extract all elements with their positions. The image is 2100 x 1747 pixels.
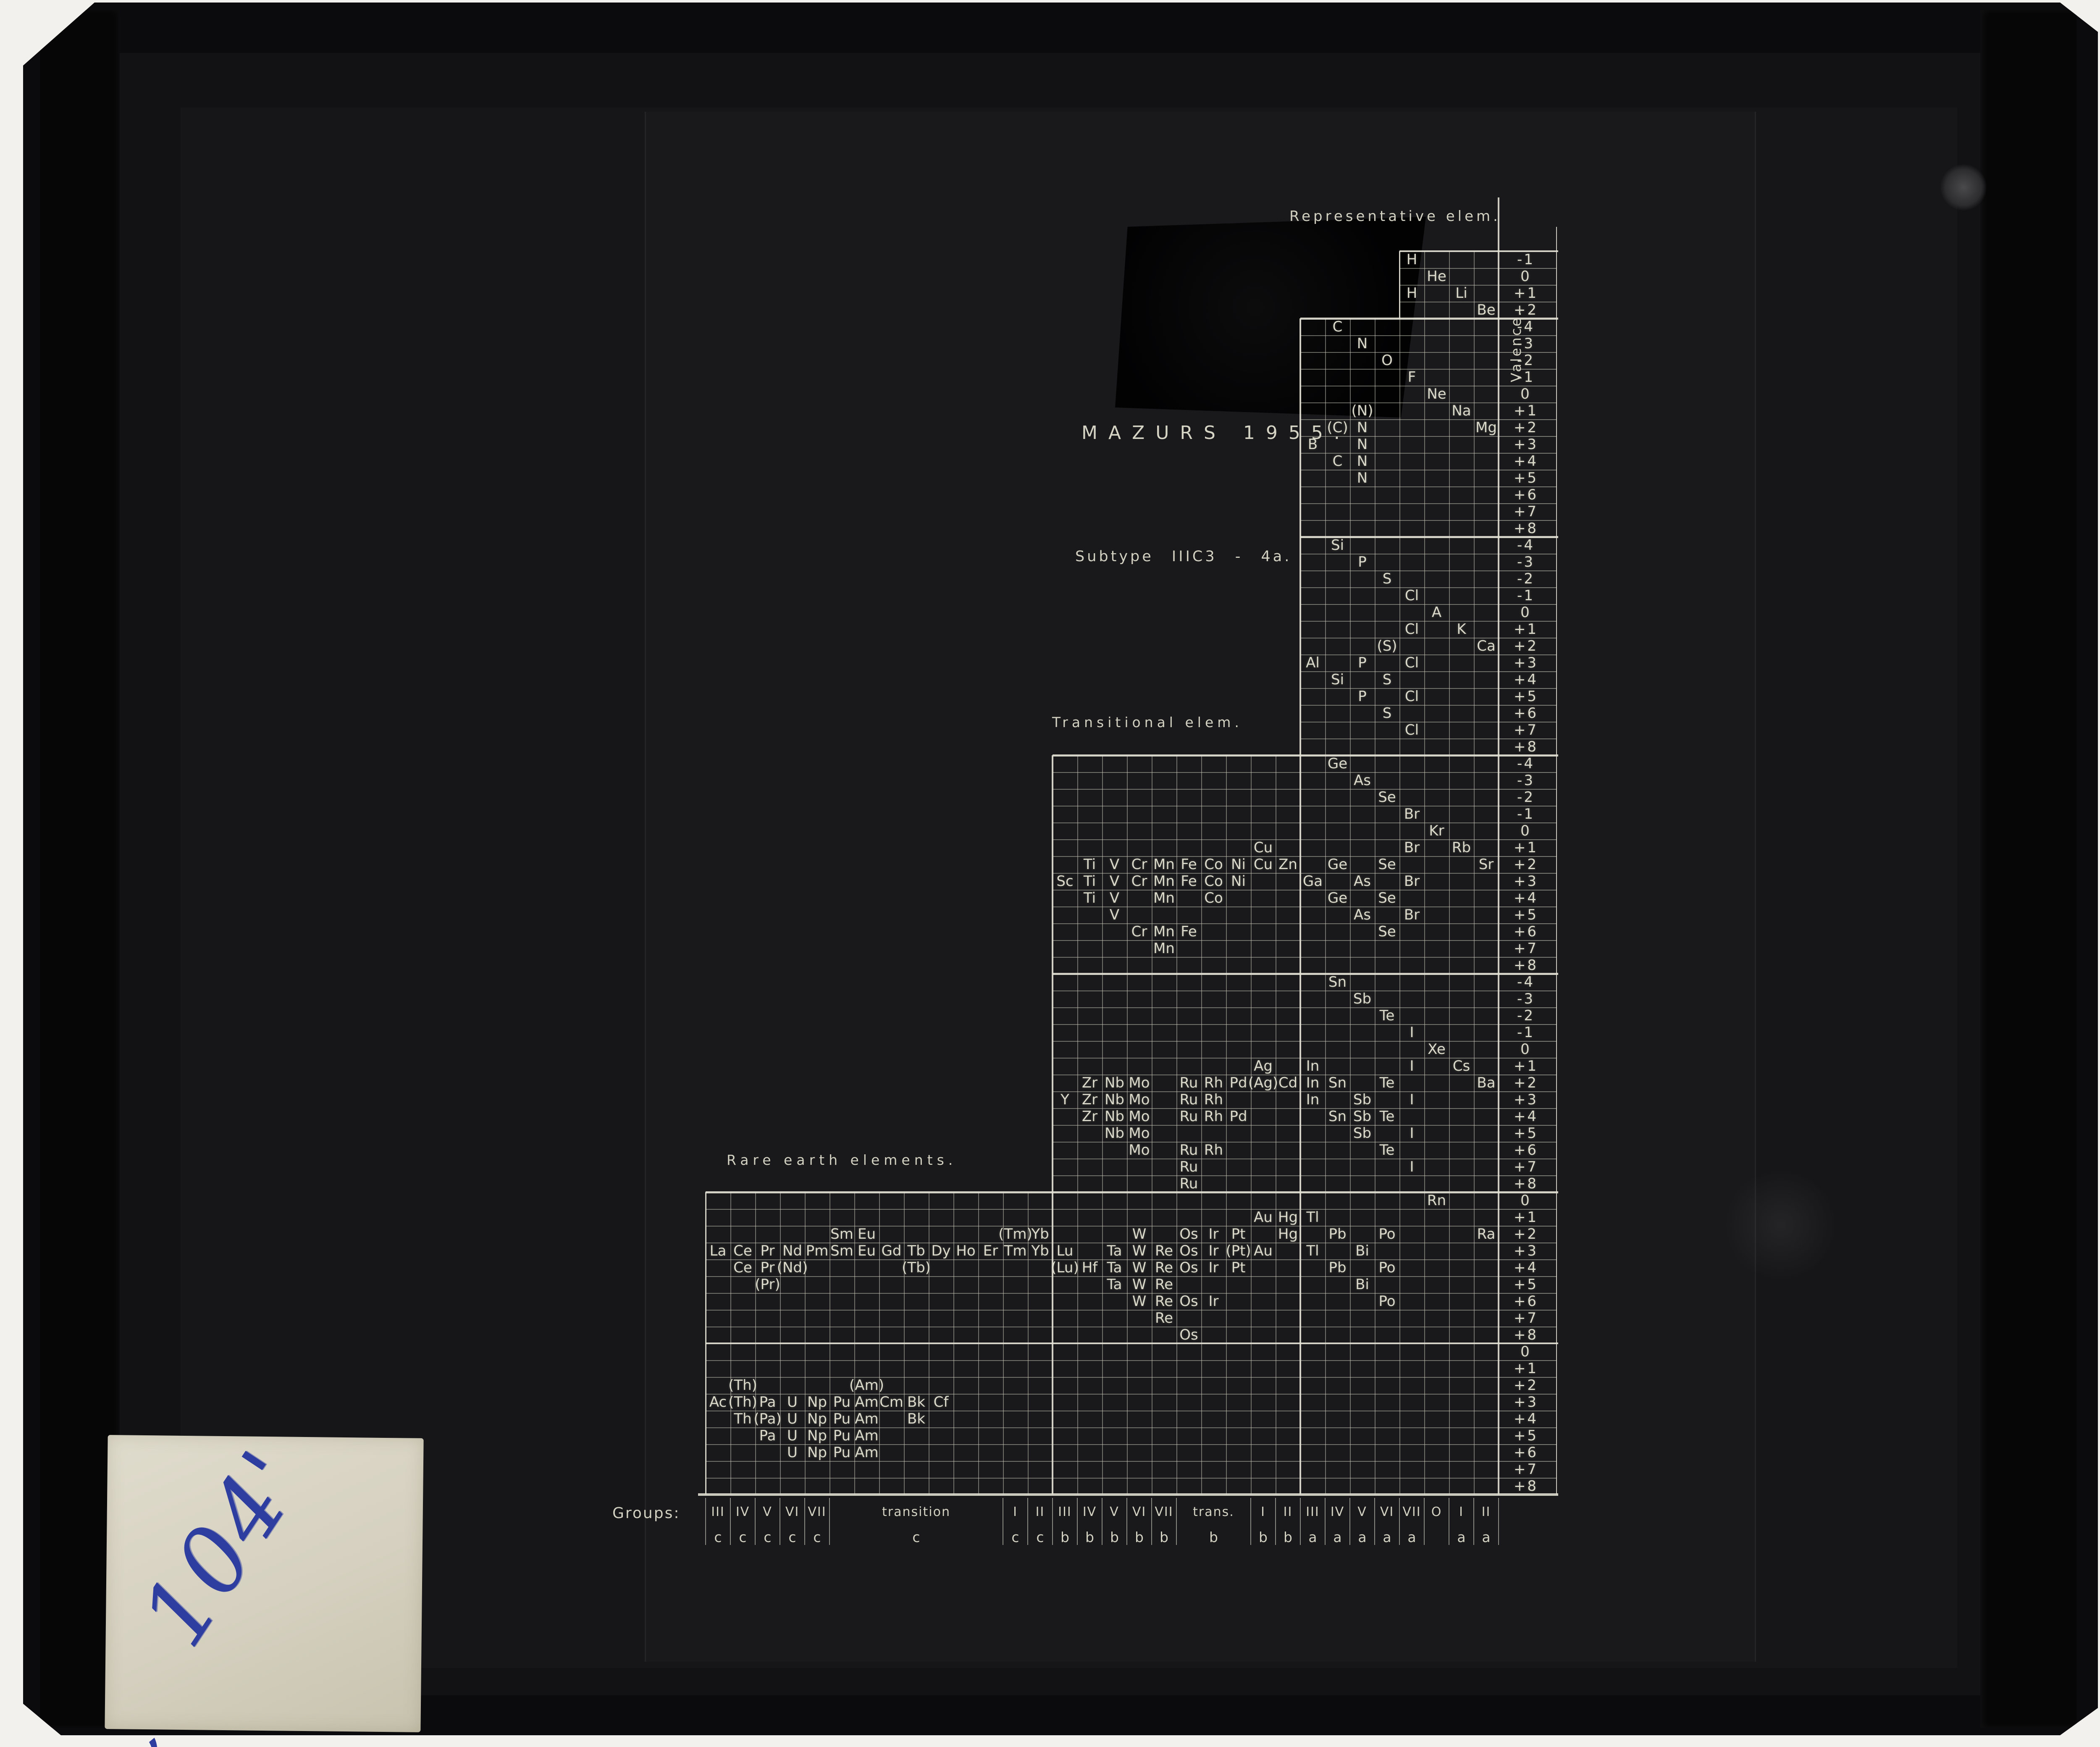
valence-value: +1: [1502, 1058, 1550, 1074]
element-symbol: Np: [805, 1411, 829, 1427]
element-symbol: (Th): [730, 1377, 755, 1394]
element-symbol: K: [1449, 621, 1474, 638]
element-symbol: In: [1300, 1058, 1325, 1074]
valence-value: +1: [1502, 621, 1550, 638]
element-symbol: Mn: [1152, 940, 1176, 957]
element-symbol: Np: [805, 1394, 829, 1411]
element-symbol: U: [780, 1427, 805, 1444]
valence-value: +8: [1502, 1327, 1550, 1343]
group-divider: [730, 1498, 731, 1545]
element-symbol: Kr: [1424, 822, 1449, 839]
element-symbol: Sn: [1325, 1108, 1350, 1125]
group-letter-label: c: [730, 1528, 755, 1546]
rule-line-horizontal: [1053, 973, 1558, 975]
group-roman-label: II: [1474, 1503, 1499, 1521]
element-symbol: (N): [1350, 402, 1375, 419]
element-symbol: Re: [1152, 1276, 1176, 1293]
element-symbol: U: [780, 1411, 805, 1427]
group-roman-label: IV: [1325, 1503, 1350, 1521]
rule-line-horizontal: [706, 1342, 1558, 1344]
rule-line-horizontal: [1053, 754, 1558, 757]
element-symbol: In: [1300, 1074, 1325, 1091]
element-symbol: Ne: [1424, 386, 1449, 402]
element-symbol: Mo: [1127, 1142, 1152, 1159]
valence-value: 0: [1502, 386, 1550, 402]
valence-value: +7: [1502, 1159, 1550, 1175]
element-symbol: Sc: [1053, 873, 1077, 890]
element-symbol: As: [1350, 906, 1375, 923]
valence-value: -4: [1502, 755, 1550, 772]
valence-value: -3: [1502, 990, 1550, 1007]
element-symbol: (C): [1325, 419, 1350, 436]
element-symbol: Ce: [730, 1243, 755, 1259]
group-letter-label: b: [1077, 1528, 1102, 1546]
element-symbol: N: [1350, 453, 1375, 470]
element-symbol: Fe: [1176, 873, 1201, 890]
valence-value: +3: [1502, 654, 1550, 671]
valence-value: -4: [1502, 318, 1550, 335]
group-divider: [1176, 1498, 1177, 1545]
element-symbol: Mo: [1127, 1091, 1152, 1108]
element-symbol: Ga: [1300, 873, 1325, 890]
element-symbol: U: [780, 1394, 805, 1411]
element-symbol: Pu: [829, 1394, 854, 1411]
element-symbol: (Tm): [1003, 1226, 1028, 1243]
element-symbol: Se: [1375, 789, 1399, 806]
element-symbol: W: [1127, 1243, 1152, 1259]
element-symbol: Te: [1375, 1007, 1399, 1024]
element-symbol: U: [780, 1444, 805, 1461]
group-letter-label: c: [1028, 1528, 1053, 1546]
valence-value: +7: [1502, 503, 1550, 520]
element-symbol: V: [1102, 856, 1127, 873]
group-divider: [804, 1498, 805, 1545]
element-symbol: Ag: [1251, 1058, 1276, 1074]
valence-value: 0: [1502, 604, 1550, 621]
element-symbol: Mn: [1152, 856, 1176, 873]
group-divider: [1250, 1498, 1251, 1545]
element-symbol: Cu: [1251, 839, 1276, 856]
valence-value: +5: [1502, 1125, 1550, 1142]
group-divider: [1027, 1498, 1028, 1545]
element-symbol: Yb: [1028, 1226, 1053, 1243]
element-symbol: P: [1350, 688, 1375, 705]
element-symbol: Ni: [1226, 856, 1251, 873]
element-symbol: Zn: [1276, 856, 1300, 873]
group-divider: [1126, 1498, 1127, 1545]
valence-value: +7: [1502, 722, 1550, 738]
valence-value: -3: [1502, 772, 1550, 789]
element-symbol: Hf: [1077, 1259, 1102, 1276]
element-symbol: Sb: [1350, 1125, 1375, 1142]
groups-label: Groups:: [612, 1505, 680, 1522]
group-letter-label: b: [1127, 1528, 1152, 1546]
element-symbol: Re: [1152, 1310, 1176, 1327]
element-symbol: H: [1399, 251, 1424, 268]
valence-value: +4: [1502, 890, 1550, 906]
group-divider: [1349, 1498, 1350, 1545]
element-symbol: N: [1350, 419, 1375, 436]
element-symbol: Pa: [755, 1427, 780, 1444]
element-symbol: He: [1424, 268, 1449, 285]
group-letter-label: a: [1350, 1528, 1375, 1546]
element-symbol: Cr: [1127, 873, 1152, 890]
element-symbol: Br: [1399, 873, 1424, 890]
valence-value: +2: [1502, 1377, 1550, 1394]
element-symbol: Co: [1201, 890, 1226, 906]
element-symbol: Am: [854, 1427, 879, 1444]
group-letter-label: a: [1300, 1528, 1325, 1546]
valence-value: +5: [1502, 470, 1550, 486]
valence-value: +8: [1502, 1175, 1550, 1192]
element-symbol: Nd: [780, 1243, 805, 1259]
element-symbol: V: [1102, 890, 1127, 906]
group-roman-label: VI: [780, 1503, 805, 1521]
valence-value: +2: [1502, 1226, 1550, 1243]
valence-value: +6: [1502, 486, 1550, 503]
element-symbol: Nb: [1102, 1074, 1127, 1091]
valence-value: -2: [1502, 352, 1550, 369]
valence-value: +2: [1502, 638, 1550, 654]
element-symbol: Li: [1449, 285, 1474, 302]
valence-value: +3: [1502, 1091, 1550, 1108]
element-symbol: Ru: [1176, 1091, 1201, 1108]
element-symbol: Cl: [1399, 654, 1424, 671]
valence-value: +8: [1502, 520, 1550, 537]
element-symbol: I: [1399, 1058, 1424, 1074]
group-roman-label: V: [1102, 1503, 1127, 1521]
group-roman-label: IV: [730, 1503, 755, 1521]
element-symbol: Au: [1251, 1209, 1276, 1226]
element-symbol: Ir: [1201, 1226, 1226, 1243]
element-symbol: Os: [1176, 1293, 1201, 1310]
element-symbol: Mo: [1127, 1108, 1152, 1125]
element-symbol: Ge: [1325, 755, 1350, 772]
element-symbol: Mn: [1152, 890, 1176, 906]
element-symbol: Sr: [1474, 856, 1499, 873]
element-symbol: Sn: [1325, 1074, 1350, 1091]
element-symbol: Ir: [1201, 1243, 1226, 1259]
group-divider: [780, 1498, 780, 1545]
group-letter-label: c: [805, 1528, 829, 1546]
element-symbol: Se: [1375, 923, 1399, 940]
element-symbol: (Lu): [1053, 1259, 1077, 1276]
valence-value: +4: [1502, 1411, 1550, 1427]
group-divider: [1003, 1498, 1003, 1545]
element-symbol: (Tb): [904, 1259, 929, 1276]
group-letter-label: c: [829, 1528, 1003, 1546]
valence-value: -3: [1502, 335, 1550, 352]
element-symbol: Ho: [953, 1243, 978, 1259]
element-symbol: Pt: [1226, 1226, 1251, 1243]
element-symbol: Np: [805, 1444, 829, 1461]
group-divider: [1424, 1498, 1425, 1545]
group-roman-label: I: [1449, 1503, 1474, 1521]
element-symbol: (Pt): [1226, 1243, 1251, 1259]
element-symbol: Rh: [1201, 1108, 1226, 1125]
element-symbol: As: [1350, 873, 1375, 890]
group-letter-label: a: [1449, 1528, 1474, 1546]
element-symbol: Am: [854, 1444, 879, 1461]
element-symbol: Ru: [1176, 1108, 1201, 1125]
valence-value: +1: [1502, 1209, 1550, 1226]
element-symbol: Ru: [1176, 1159, 1201, 1175]
valence-value: +3: [1502, 436, 1550, 453]
element-symbol: Ru: [1176, 1142, 1201, 1159]
element-symbol: N: [1350, 470, 1375, 486]
group-roman-label: V: [755, 1503, 780, 1521]
element-symbol: Yb: [1028, 1243, 1053, 1259]
element-symbol: I: [1399, 1125, 1424, 1142]
element-symbol: Tm: [1003, 1243, 1028, 1259]
element-symbol: Cl: [1399, 688, 1424, 705]
element-symbol: W: [1127, 1259, 1152, 1276]
element-symbol: Pb: [1325, 1259, 1350, 1276]
element-symbol: P: [1350, 554, 1375, 570]
element-symbol: Ba: [1474, 1074, 1499, 1091]
catalog-sticker: 104' ,: [105, 1435, 423, 1732]
element-symbol: I: [1399, 1159, 1424, 1175]
element-symbol: Hg: [1276, 1226, 1300, 1243]
group-letter-label: a: [1375, 1528, 1399, 1546]
element-symbol: Bi: [1350, 1243, 1375, 1259]
element-symbol: Mg: [1474, 419, 1499, 436]
element-symbol: Pt: [1226, 1259, 1251, 1276]
group-letter-label: b: [1176, 1528, 1251, 1546]
valence-value: +3: [1502, 873, 1550, 890]
element-symbol: Ni: [1226, 873, 1251, 890]
element-symbol: Cd: [1276, 1074, 1300, 1091]
element-symbol: Pu: [829, 1411, 854, 1427]
valence-value: -2: [1502, 570, 1550, 587]
group-divider: [1102, 1498, 1102, 1545]
element-symbol: Cr: [1127, 923, 1152, 940]
element-symbol: Ca: [1474, 638, 1499, 654]
element-symbol: C: [1325, 453, 1350, 470]
element-symbol: (Pr): [755, 1276, 780, 1293]
element-symbol: Dy: [929, 1243, 953, 1259]
valence-value: +5: [1502, 688, 1550, 705]
element-symbol: Fe: [1176, 923, 1201, 940]
group-roman-label: VI: [1375, 1503, 1399, 1521]
rule-line-vertical: [1399, 251, 1400, 318]
element-symbol: F: [1399, 369, 1424, 386]
element-symbol: Y: [1053, 1091, 1077, 1108]
group-roman-label: IV: [1077, 1503, 1102, 1521]
element-symbol: Sb: [1350, 990, 1375, 1007]
group-divider: [1052, 1498, 1053, 1545]
group-roman-label: II: [1028, 1503, 1053, 1521]
element-symbol: Ru: [1176, 1175, 1201, 1192]
element-symbol: Pa: [755, 1394, 780, 1411]
element-symbol: Bi: [1350, 1276, 1375, 1293]
element-symbol: Pr: [755, 1259, 780, 1276]
group-roman-label: I: [1003, 1503, 1028, 1521]
element-symbol: Eu: [854, 1226, 879, 1243]
element-symbol: Be: [1474, 302, 1499, 318]
element-symbol: S: [1375, 705, 1399, 722]
element-symbol: Po: [1375, 1226, 1399, 1243]
element-symbol: Se: [1375, 856, 1399, 873]
group-roman-label: O: [1424, 1503, 1449, 1521]
group-roman-label: I: [1251, 1503, 1276, 1521]
group-roman-label: VII: [805, 1503, 829, 1521]
element-symbol: P: [1350, 654, 1375, 671]
group-divider: [1300, 1498, 1301, 1545]
rule-line-horizontal: [1300, 318, 1558, 320]
valence-value: +7: [1502, 1461, 1550, 1478]
element-symbol: Sn: [1325, 974, 1350, 990]
valence-value: -1: [1502, 251, 1550, 268]
element-symbol: Zr: [1077, 1074, 1102, 1091]
element-symbol: Sm: [829, 1226, 854, 1243]
element-symbol: Re: [1152, 1293, 1176, 1310]
element-symbol: W: [1127, 1276, 1152, 1293]
valence-value: -2: [1502, 789, 1550, 806]
rule-line-horizontal: [706, 1191, 1558, 1193]
element-symbol: Ti: [1077, 856, 1102, 873]
element-symbol: Er: [978, 1243, 1003, 1259]
element-symbol: Ta: [1102, 1276, 1127, 1293]
element-symbol: Mo: [1127, 1125, 1152, 1142]
element-symbol: C: [1325, 318, 1350, 335]
element-symbol: Sb: [1350, 1108, 1375, 1125]
element-symbol: (Ag): [1251, 1074, 1276, 1091]
element-symbol: Au: [1251, 1243, 1276, 1259]
rare-earth-elements-label: Rare earth elements.: [727, 1152, 957, 1168]
valence-value: +2: [1502, 419, 1550, 436]
group-roman-label: III: [1300, 1503, 1325, 1521]
valence-value: +4: [1502, 1108, 1550, 1125]
element-symbol: Pm: [805, 1243, 829, 1259]
rule-line-vertical: [705, 1192, 706, 1495]
valence-value: +6: [1502, 1293, 1550, 1310]
element-symbol: Co: [1201, 873, 1226, 890]
catalog-number-handwriting: 104': [121, 1431, 325, 1665]
element-symbol: Os: [1176, 1259, 1201, 1276]
element-symbol: (S): [1375, 638, 1399, 654]
group-divider: [829, 1498, 830, 1545]
element-symbol: Ta: [1102, 1259, 1127, 1276]
element-symbol: W: [1127, 1293, 1152, 1310]
element-symbol: (Pa): [755, 1411, 780, 1427]
element-symbol: Si: [1325, 537, 1350, 554]
group-divider: [1077, 1498, 1078, 1545]
valence-value: 0: [1502, 822, 1550, 839]
valence-value: -1: [1502, 369, 1550, 386]
element-symbol: Tl: [1300, 1243, 1325, 1259]
element-symbol: I: [1399, 1091, 1424, 1108]
element-symbol: Am: [854, 1411, 879, 1427]
element-symbol: Pb: [1325, 1226, 1350, 1243]
element-symbol: Ti: [1077, 890, 1102, 906]
element-symbol: Bk: [904, 1394, 929, 1411]
valence-value: +7: [1502, 940, 1550, 957]
group-roman-label: trans.: [1176, 1503, 1251, 1521]
element-symbol: S: [1375, 671, 1399, 688]
group-divider: [1498, 1498, 1499, 1545]
element-symbol: Tl: [1300, 1209, 1325, 1226]
group-roman-label: V: [1350, 1503, 1375, 1521]
element-symbol: Nb: [1102, 1108, 1127, 1125]
element-symbol: V: [1102, 906, 1127, 923]
valence-value: +7: [1502, 1310, 1550, 1327]
element-symbol: Gd: [879, 1243, 904, 1259]
element-symbol: Ge: [1325, 856, 1350, 873]
element-symbol: Ir: [1201, 1259, 1226, 1276]
rule-line-vertical: [1498, 197, 1499, 1495]
group-roman-label: VII: [1152, 1503, 1176, 1521]
valence-value: +8: [1502, 738, 1550, 755]
element-symbol: Pr: [755, 1243, 780, 1259]
element-symbol: Mn: [1152, 923, 1176, 940]
group-roman-label: VI: [1127, 1503, 1152, 1521]
element-symbol: Ra: [1474, 1226, 1499, 1243]
element-symbol: Cf: [929, 1394, 953, 1411]
element-symbol: Sm: [829, 1243, 854, 1259]
valence-value: -1: [1502, 1024, 1550, 1041]
element-symbol: Ac: [706, 1394, 730, 1411]
group-divider: [1275, 1498, 1276, 1545]
element-symbol: Na: [1449, 402, 1474, 419]
valence-value: +6: [1502, 705, 1550, 722]
element-symbol: Os: [1176, 1243, 1201, 1259]
element-symbol: Pd: [1226, 1074, 1251, 1091]
rule-line-horizontal: [698, 1493, 1558, 1496]
valence-value: +2: [1502, 856, 1550, 873]
rule-line-horizontal: [1399, 250, 1558, 252]
element-symbol: S: [1375, 570, 1399, 587]
valence-value: 0: [1502, 268, 1550, 285]
group-letter-label: c: [1003, 1528, 1028, 1546]
valence-value: +5: [1502, 1427, 1550, 1444]
group-letter-label: b: [1102, 1528, 1127, 1546]
transitional-elements-label: Transitional elem.: [1052, 714, 1243, 730]
group-roman-label: III: [1053, 1503, 1077, 1521]
element-symbol: Rn: [1424, 1192, 1449, 1209]
group-divider: [1325, 1498, 1326, 1545]
rule-line-vertical: [1299, 318, 1301, 1495]
element-symbol: Rh: [1201, 1074, 1226, 1091]
element-symbol: (Th): [730, 1394, 755, 1411]
group-letter-label: c: [780, 1528, 805, 1546]
group-divider: [705, 1498, 706, 1545]
element-symbol: Co: [1201, 856, 1226, 873]
group-roman-label: II: [1276, 1503, 1300, 1521]
element-symbol: Os: [1176, 1327, 1201, 1343]
element-symbol: (Nd): [780, 1259, 805, 1276]
valence-value: +6: [1502, 1444, 1550, 1461]
element-symbol: Ti: [1077, 873, 1102, 890]
group-letter-label: a: [1474, 1528, 1499, 1546]
element-symbol: Xe: [1424, 1041, 1449, 1058]
valence-value: -4: [1502, 537, 1550, 554]
element-symbol: Br: [1399, 839, 1424, 856]
group-letter-label: a: [1399, 1528, 1424, 1546]
valence-value: 0: [1502, 1343, 1550, 1360]
element-symbol: Th: [730, 1411, 755, 1427]
element-symbol: B: [1300, 436, 1325, 453]
element-symbol: Ta: [1102, 1243, 1127, 1259]
element-symbol: Ge: [1325, 890, 1350, 906]
element-symbol: Eu: [854, 1243, 879, 1259]
element-symbol: Br: [1399, 806, 1424, 822]
element-symbol: N: [1350, 436, 1375, 453]
element-symbol: Te: [1375, 1108, 1399, 1125]
element-symbol: Ir: [1201, 1293, 1226, 1310]
valence-value: +1: [1502, 1360, 1550, 1377]
group-letter-label: b: [1251, 1528, 1276, 1546]
